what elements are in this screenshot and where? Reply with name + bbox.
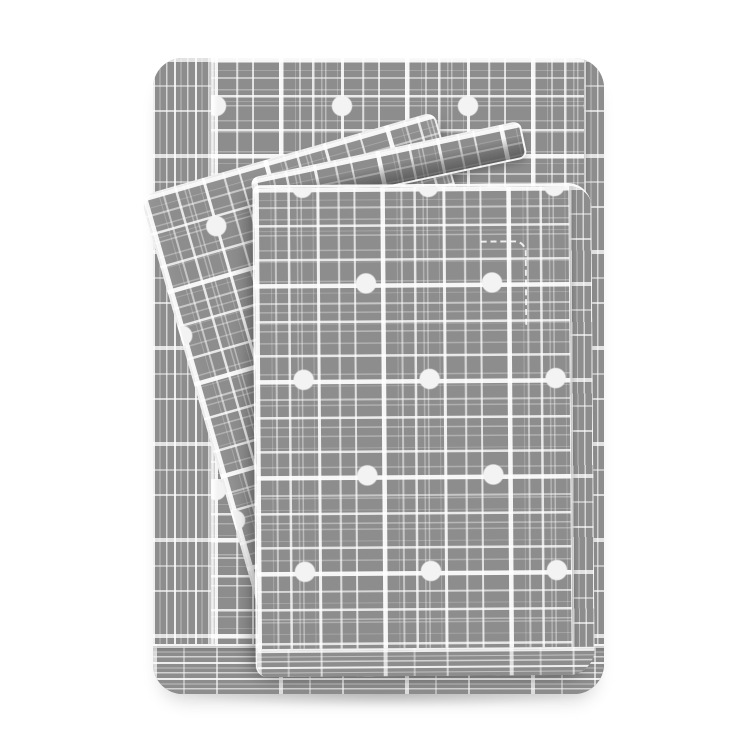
front-sheet-stacked-bottom-edge — [258, 647, 595, 677]
front-sheet-right-roll — [569, 186, 594, 675]
product-photo — [0, 0, 750, 750]
front-folded-sheet — [252, 183, 594, 677]
stitch-dashes — [481, 240, 528, 326]
front-sheet-fabric — [254, 186, 594, 677]
